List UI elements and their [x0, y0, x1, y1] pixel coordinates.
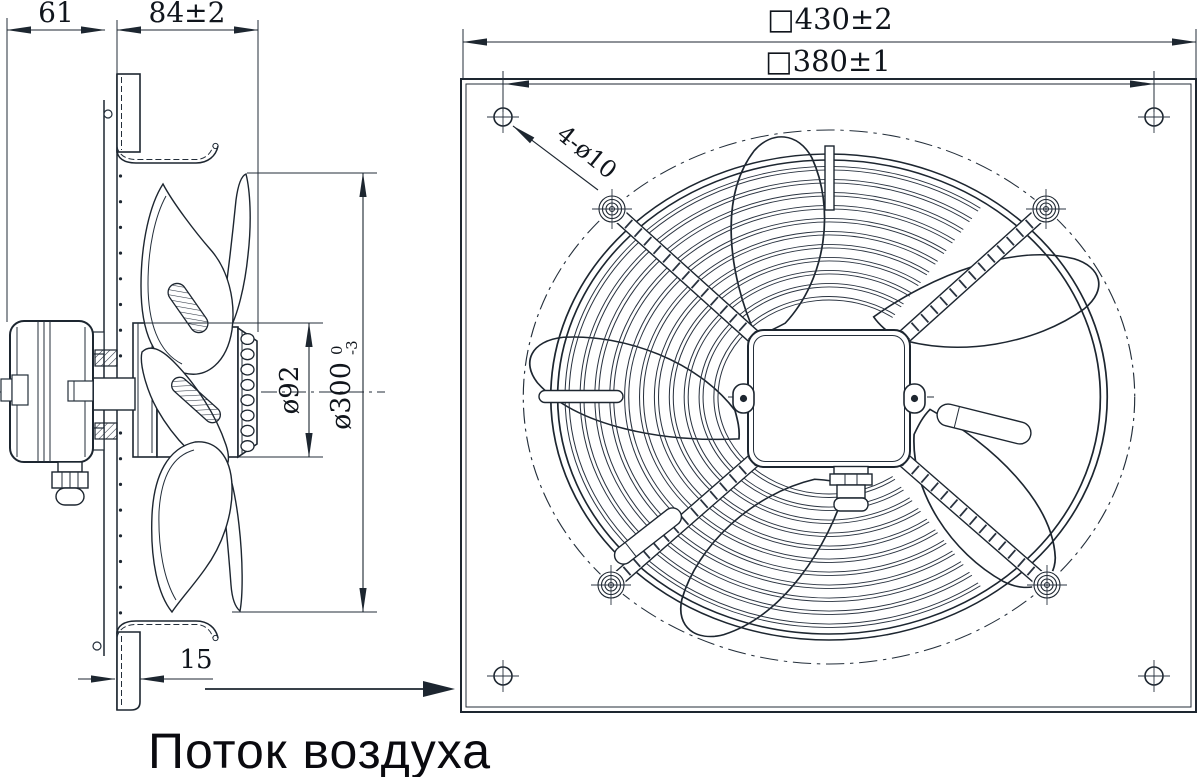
grille-clip-top: [825, 146, 834, 210]
front-view: [461, 79, 1196, 712]
dim-total-depth: 84±2: [149, 0, 226, 29]
dim-impeller-tol-lower: -3: [343, 340, 361, 355]
technical-drawing-page: 61 84±2 □430±2 □380±1 4-ø10 ø92 ø300 0 -…: [0, 0, 1200, 777]
dim-flange-depth: 15: [179, 645, 212, 675]
airflow-arrow: [205, 681, 455, 697]
dim-motor-depth: 61: [38, 0, 74, 29]
dim-mount-holes: 4-ø10: [551, 120, 622, 185]
dim-impeller-diameter: ø300 0 -3: [326, 340, 361, 430]
cable-gland-side: [52, 462, 88, 505]
motor: [1, 321, 93, 505]
fan-drawing: 61 84±2 □430±2 □380±1 4-ø10 ø92 ø300 0 -…: [0, 0, 1200, 777]
dim-bolt-square: □380±1: [765, 44, 891, 78]
dim-outer-square: □430±2: [767, 2, 893, 36]
grille-clip-left: [539, 391, 623, 403]
airflow-caption: Поток воздуха: [148, 722, 491, 777]
dim-hub-diameter: ø92: [275, 366, 305, 415]
dim-impeller-value: ø300: [326, 362, 357, 430]
